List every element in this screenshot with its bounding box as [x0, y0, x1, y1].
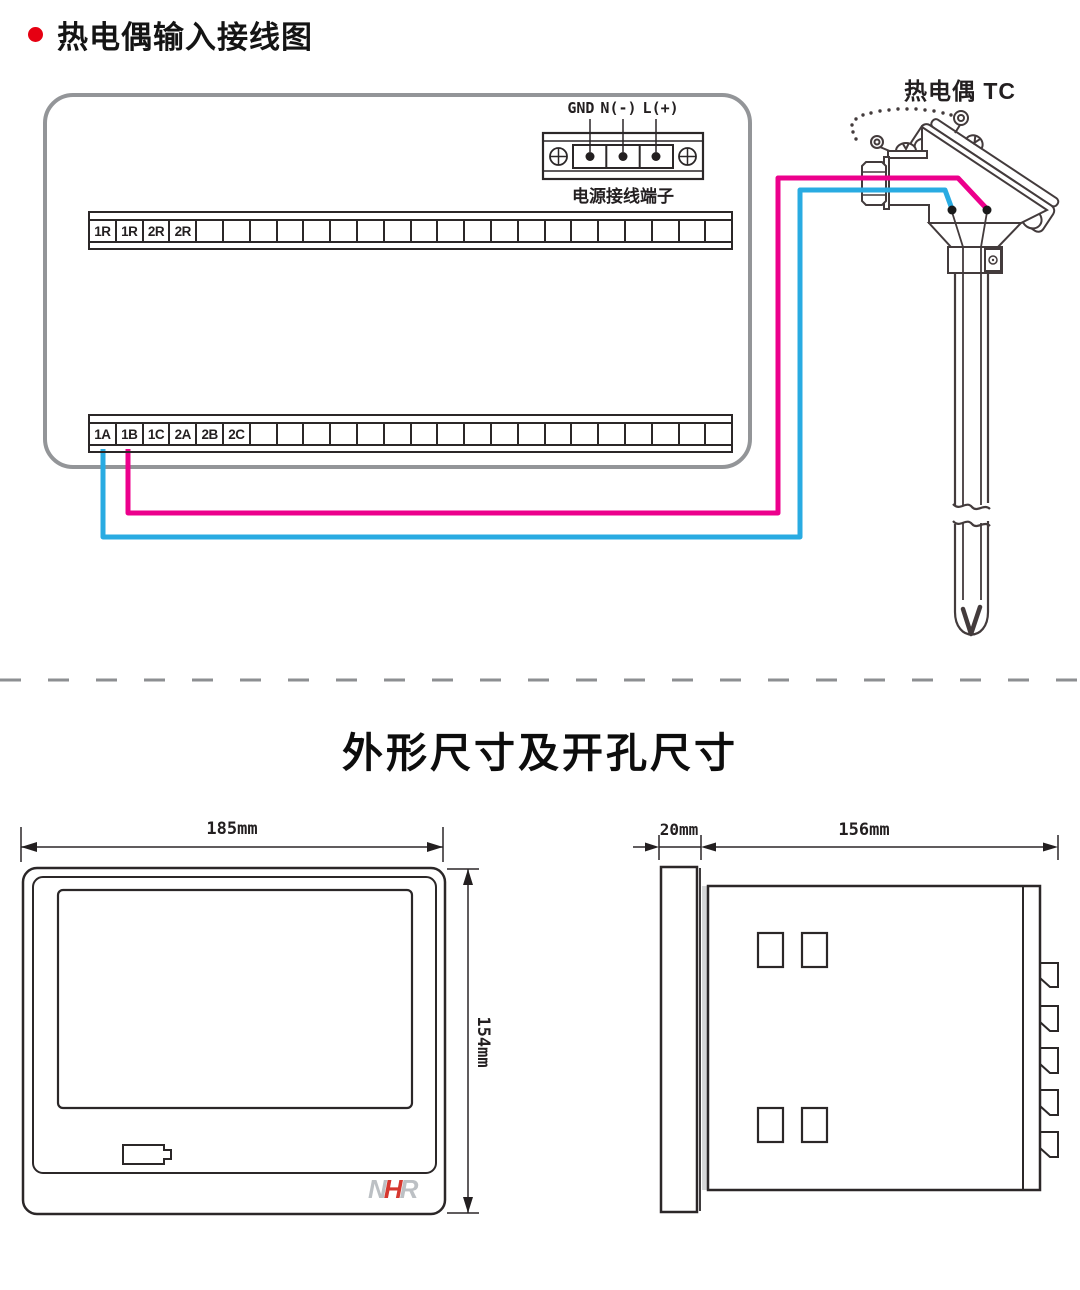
- terminal-cell: [304, 221, 331, 241]
- terminal-cell: [278, 424, 305, 444]
- rear-panel-outline: [45, 95, 750, 467]
- terminal-cell: [572, 221, 599, 241]
- terminal-strip-bottom: 1A1B1C2A2B2C: [88, 414, 733, 453]
- terminal-cell: [653, 424, 680, 444]
- terminal-strip-top: 1R1R2R2R: [88, 211, 733, 250]
- terminal-cell: [546, 424, 573, 444]
- strip-cells: 1A1B1C2A2B2C: [90, 424, 731, 444]
- terminal-cell: 1R: [90, 221, 117, 241]
- case-body-profile: [708, 886, 1040, 1190]
- terminal-cell: [251, 424, 278, 444]
- gnd-label: GND: [567, 99, 594, 117]
- terminal-cell: [251, 221, 278, 241]
- terminal-cell: 2R: [144, 221, 171, 241]
- probe-sheath: [953, 273, 990, 635]
- strip-rail: [90, 416, 731, 424]
- terminal-cell: [706, 221, 731, 241]
- terminal-cell: [331, 221, 358, 241]
- side-view-drawing: [633, 835, 1058, 1212]
- logo-letter-n: N: [368, 1174, 384, 1204]
- usb-port: [123, 1145, 171, 1164]
- terminal-cell: [599, 424, 626, 444]
- neutral-label: N(-): [600, 99, 636, 117]
- terminal-cell: [385, 424, 412, 444]
- terminal-cell: [626, 221, 653, 241]
- terminal-cell: [626, 424, 653, 444]
- terminal-cell: 1C: [144, 424, 171, 444]
- terminal-cell: [331, 424, 358, 444]
- manual-page: 热电偶输入接线图 热电偶 TC GNDN(-)L(+) 电源接线端子 1R1R2…: [0, 0, 1080, 1290]
- terminal-cell: 2A: [170, 424, 197, 444]
- dimensions-section-title: 外形尺寸及开孔尺寸: [0, 719, 1080, 779]
- bullet-icon: [28, 27, 43, 42]
- nhr-logo: NHR: [368, 1174, 415, 1205]
- power-leader-lines: [590, 119, 656, 152]
- power-terminal-block: [543, 119, 703, 179]
- terminal-cell: [706, 424, 731, 444]
- terminal-cell: [412, 424, 439, 444]
- terminal-dot: [948, 206, 957, 215]
- terminal-cell: [278, 221, 305, 241]
- front-bezel-profile: [661, 867, 697, 1212]
- terminal-tabs: [1040, 963, 1058, 1157]
- thermocouple-drawing: [850, 107, 1066, 634]
- terminal-cell: [680, 221, 707, 241]
- terminal-cell: 2R: [170, 221, 197, 241]
- thermocouple-label: 热电偶 TC: [880, 72, 1040, 106]
- terminal-cell: 2B: [197, 424, 224, 444]
- terminal-cell: [224, 221, 251, 241]
- strip-rail: [90, 213, 731, 221]
- strip-rail: [90, 444, 731, 451]
- terminal-cell: [492, 221, 519, 241]
- screen: [58, 890, 412, 1108]
- terminal-cell: [572, 424, 599, 444]
- diagram-canvas: [0, 0, 1080, 1290]
- terminal-cell: [438, 424, 465, 444]
- terminal-cell: [599, 221, 626, 241]
- terminal-cell: [358, 424, 385, 444]
- terminal-cell: 1A: [90, 424, 117, 444]
- terminal-cell: [465, 424, 492, 444]
- logo-letter-h: H: [384, 1174, 400, 1204]
- strip-rail: [90, 241, 731, 248]
- front-view-drawing: [21, 827, 479, 1214]
- page-title: 热电偶输入接线图: [57, 12, 313, 57]
- terminal-dot: [983, 206, 992, 215]
- terminal-cell: [546, 221, 573, 241]
- terminal-cell: [438, 221, 465, 241]
- terminal-cell: [412, 221, 439, 241]
- line-label: L(+): [643, 99, 679, 117]
- logo-letter-r: R: [400, 1174, 416, 1204]
- strip-cells: 1R1R2R2R: [90, 221, 731, 241]
- power-terminal-labels: GNDN(-)L(+): [528, 99, 718, 117]
- probe-tip-mark: [963, 607, 980, 634]
- terminal-cell: 1R: [117, 221, 144, 241]
- terminal-cell: [519, 221, 546, 241]
- terminal-cell: [653, 221, 680, 241]
- terminal-cell: [197, 221, 224, 241]
- terminal-cell: [492, 424, 519, 444]
- cable-gland: [862, 162, 886, 205]
- width-dimension-label: 185mm: [21, 819, 443, 839]
- terminal-cell: [304, 424, 331, 444]
- terminal-cell: 2C: [224, 424, 251, 444]
- terminal-cell: [465, 221, 492, 241]
- body-dimension-label: 156mm: [758, 820, 970, 840]
- terminal-cell: 1B: [117, 424, 144, 444]
- terminal-cell: [680, 424, 707, 444]
- depth-dimension-label: 20mm: [648, 820, 710, 839]
- terminal-cell: [519, 424, 546, 444]
- page-header: 热电偶输入接线图: [28, 12, 313, 57]
- height-dimension-label: 154mm: [473, 1007, 493, 1077]
- terminal-cell: [358, 221, 385, 241]
- terminal-cell: [385, 221, 412, 241]
- power-terminal-caption: 电源接线端子: [543, 182, 703, 207]
